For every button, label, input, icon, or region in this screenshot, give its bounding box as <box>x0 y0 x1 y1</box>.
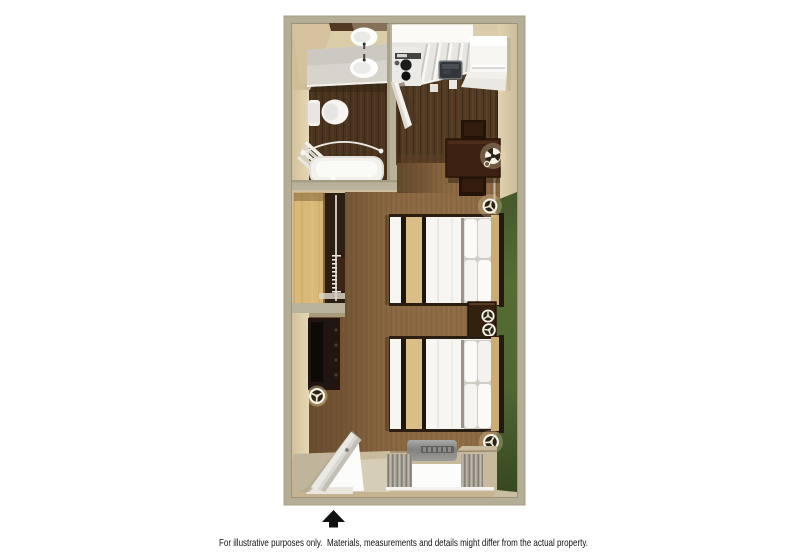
svg-text:For illustrative purposes only: For illustrative purposes only. Material… <box>219 538 588 549</box>
